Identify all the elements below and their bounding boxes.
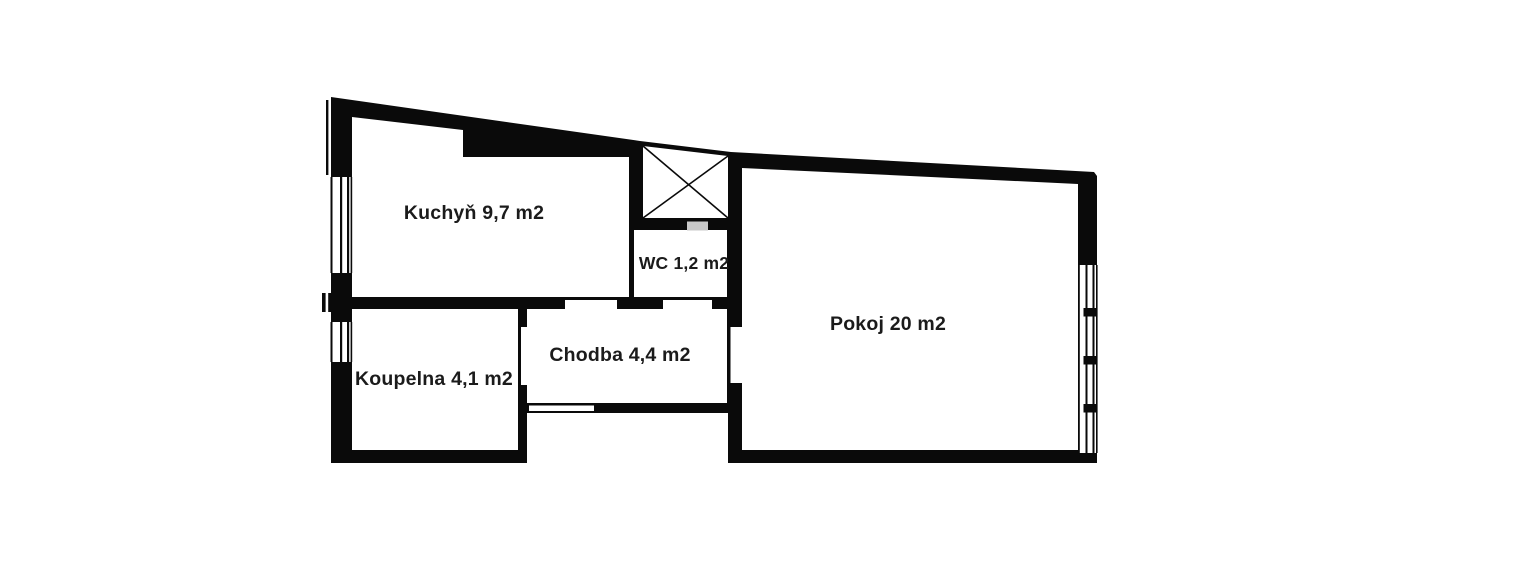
window-line-top-left	[326, 100, 328, 175]
door-opening-wc	[663, 300, 712, 309]
room-label-wc: WC 1,2 m2	[639, 253, 729, 273]
window-right	[1078, 265, 1098, 453]
floorplan-svg: Kuchyň 9,7 m2 WC 1,2 m2 Pokoj 20 m2 Koup…	[0, 0, 1536, 578]
shaft-cross-icon	[643, 146, 728, 218]
window-mullion-2	[1084, 356, 1098, 365]
wall-projection-left	[322, 293, 332, 312]
window-left-lower	[330, 322, 352, 362]
door-opening-pokoj	[731, 327, 743, 383]
door-opening-kuchyn	[565, 300, 617, 309]
room-label-kuchyn: Kuchyň 9,7 m2	[404, 202, 544, 224]
shaft-vent	[687, 222, 708, 231]
room-label-pokoj: Pokoj 20 m2	[830, 313, 946, 335]
floorplan-canvas: Kuchyň 9,7 m2 WC 1,2 m2 Pokoj 20 m2 Koup…	[0, 0, 1536, 578]
wall-structure	[331, 97, 1097, 463]
window-mullion-1	[1084, 308, 1098, 317]
entrance-door	[529, 406, 594, 412]
room-label-koupelna: Koupelna 4,1 m2	[355, 368, 513, 390]
door-opening-koupelna	[521, 327, 527, 385]
room-label-chodba: Chodba 4,4 m2	[549, 344, 690, 366]
window-left-upper	[330, 177, 352, 273]
window-mullion-3	[1084, 404, 1098, 413]
